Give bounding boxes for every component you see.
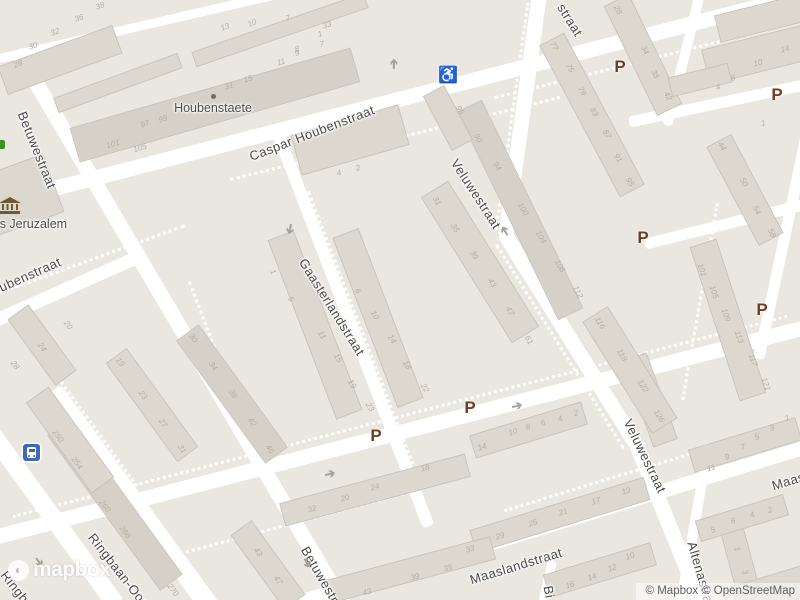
map-canvas[interactable]: 2830323638101105979931151197331310718423… [0,0,800,600]
house-number: 11 [276,57,286,68]
parking-icon: P [637,228,648,248]
house-number: 1 [268,268,278,277]
street-label: straat [554,1,586,39]
house-number: 35 [443,563,454,574]
bus-stop-icon [23,444,40,461]
house-number: 2 [355,163,362,173]
cutoff-green-icon [0,140,5,149]
street-label: Bi [541,585,558,600]
house-number: 39 [410,572,421,583]
poi-dot-icon [211,94,216,99]
house-number: 270 [165,582,180,598]
house-number: 32 [49,26,60,38]
mapbox-logo-text: mapbox [33,558,111,582]
mapbox-logo[interactable]: ◐ mapbox [8,558,111,582]
house-number: 10 [246,17,257,28]
house-number: 36 [73,12,84,24]
house-number: 7 [319,39,326,49]
house-number: 43 [362,587,373,598]
museum-icon [0,197,21,213]
parking-icon: P [614,57,625,77]
attribution-osm-link[interactable]: © OpenStreetMap [702,585,795,597]
parking-icon: P [771,85,782,105]
house-number: 105 [132,142,147,154]
house-number: 1 [760,118,766,128]
house-number: 20 [62,319,75,331]
poi-label: Houbenstaete [174,101,252,115]
one-way-arrow-icon: ➔ [323,465,338,483]
wheelchair-icon: ♿ [438,65,458,85]
house-number: 28 [9,359,22,371]
house-number: 38 [94,0,105,12]
one-way-arrow-icon: ➔ [281,222,299,236]
house-number: 13 [219,21,230,32]
parking-icon: P [464,398,475,418]
one-way-arrow-icon: ➔ [386,59,402,70]
parking-icon: P [756,300,767,320]
house-number: 33 [321,19,332,30]
house-number: 1 [316,29,323,39]
attribution-mapbox-link[interactable]: © Mapbox [646,585,699,597]
house-number: 61 [523,334,535,346]
poi-label: is Jeruzalem [0,217,67,231]
house-number: 4 [336,168,343,178]
parking-icon: P [370,426,381,446]
mapbox-logo-icon: ◐ [8,560,29,581]
attribution: © Mapbox© OpenStreetMap [636,583,800,600]
